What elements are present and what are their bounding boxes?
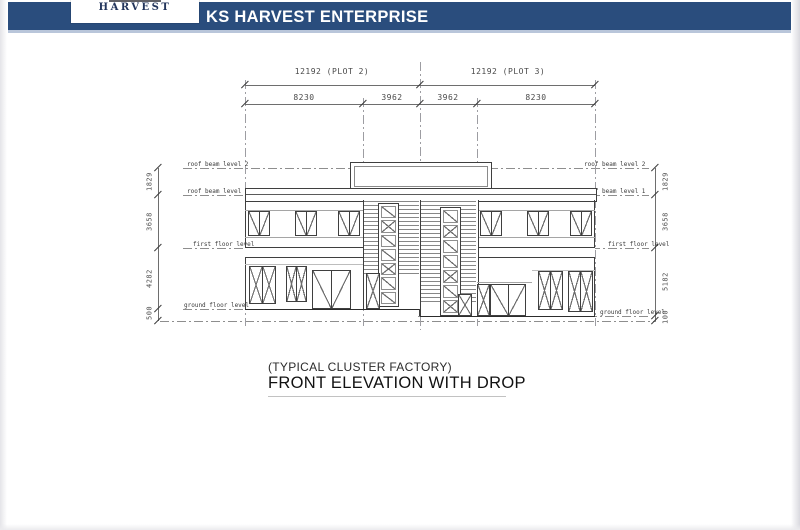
dim-segment-label: 3962 xyxy=(408,93,488,102)
level-label-ground-floor: ground floor level xyxy=(184,302,249,309)
tower-door xyxy=(458,294,472,316)
ground-line-left xyxy=(245,309,420,310)
vertical-dim-label: 500 xyxy=(144,301,155,325)
window-pane xyxy=(381,292,396,304)
upper-window-pair xyxy=(295,211,317,236)
window-pane xyxy=(381,277,396,289)
level-label-ground-floor: ground floor level xyxy=(600,309,665,316)
upper-window-pair xyxy=(338,211,360,236)
window-pane xyxy=(381,249,396,261)
vertical-dim-label: 3658 xyxy=(144,195,155,248)
extension-line xyxy=(595,80,596,326)
parapet-inner-line xyxy=(354,166,488,187)
drawing-canvas: 12192 (PLOT 2) 12192 (PLOT 3) 8230 3962 … xyxy=(0,0,800,530)
ground-window xyxy=(249,266,276,304)
vertical-dim-label: 4282 xyxy=(144,248,155,309)
window-pane xyxy=(381,220,396,232)
ground-window xyxy=(286,266,307,302)
dim-segment-label: 8230 xyxy=(264,93,344,102)
level-label-roof-beam-2: roof beam level 2 xyxy=(584,161,645,168)
window-pane xyxy=(443,210,458,223)
porch-lintel xyxy=(477,282,532,283)
window-sill-line xyxy=(245,237,363,238)
level-label-first-floor: first floor level xyxy=(608,241,669,248)
ground-window xyxy=(538,271,563,310)
ground-window xyxy=(568,271,593,312)
window-pane xyxy=(443,270,458,283)
building-right-edge xyxy=(594,200,595,317)
window-pane xyxy=(381,235,396,247)
ground-head-line xyxy=(245,264,363,265)
window-column-left xyxy=(378,203,399,307)
double-door xyxy=(312,270,351,309)
dim-segment-label: 8230 xyxy=(496,93,576,102)
drawing-type-caption: (TYPICAL CLUSTER FACTORY) xyxy=(268,360,452,374)
upper-window-pair xyxy=(248,211,270,236)
window-pane xyxy=(381,263,396,275)
page-edge xyxy=(0,524,800,530)
window-pane xyxy=(443,225,458,238)
parapet xyxy=(350,162,492,190)
vertical-dim-label: 1829 xyxy=(660,168,671,195)
vertical-dim-label: 1829 xyxy=(144,168,155,195)
document-page: HARVEST KS HARVEST ENTERPRISE 12192 (PLO… xyxy=(0,0,800,530)
window-pane xyxy=(443,285,458,298)
drawing-title: FRONT ELEVATION WITH DROP xyxy=(268,374,526,393)
elevation-drawing: 12192 (PLOT 2) 12192 (PLOT 3) 8230 3962 … xyxy=(0,34,800,530)
drawing-title-underline xyxy=(268,396,506,397)
ground-line-right xyxy=(420,316,595,317)
upper-window-pair xyxy=(480,211,502,236)
datum-line xyxy=(160,321,656,322)
vertical-dim-label: 5182 xyxy=(660,248,671,316)
window-pane xyxy=(443,255,458,268)
upper-window-pair xyxy=(570,211,592,236)
floor-slab-right xyxy=(477,247,595,258)
page-edge xyxy=(0,0,7,530)
floor-slab-left xyxy=(245,247,363,258)
double-door xyxy=(490,284,526,316)
door-leaf xyxy=(477,284,490,316)
tower-door xyxy=(366,273,380,309)
level-label-roof-beam-2: roof beam level 2 xyxy=(187,161,248,168)
dim-plot-left-label: 12192 (PLOT 2) xyxy=(292,67,372,76)
upper-window-pair xyxy=(527,211,549,236)
window-pane xyxy=(381,206,396,218)
level-label-roof-beam-1: roof beam level 1 xyxy=(187,188,248,195)
page-edge xyxy=(791,0,800,530)
dim-plot-right-label: 12192 (PLOT 3) xyxy=(468,67,548,76)
window-sill-line xyxy=(477,237,595,238)
window-pane xyxy=(443,300,458,313)
window-pane xyxy=(443,240,458,253)
